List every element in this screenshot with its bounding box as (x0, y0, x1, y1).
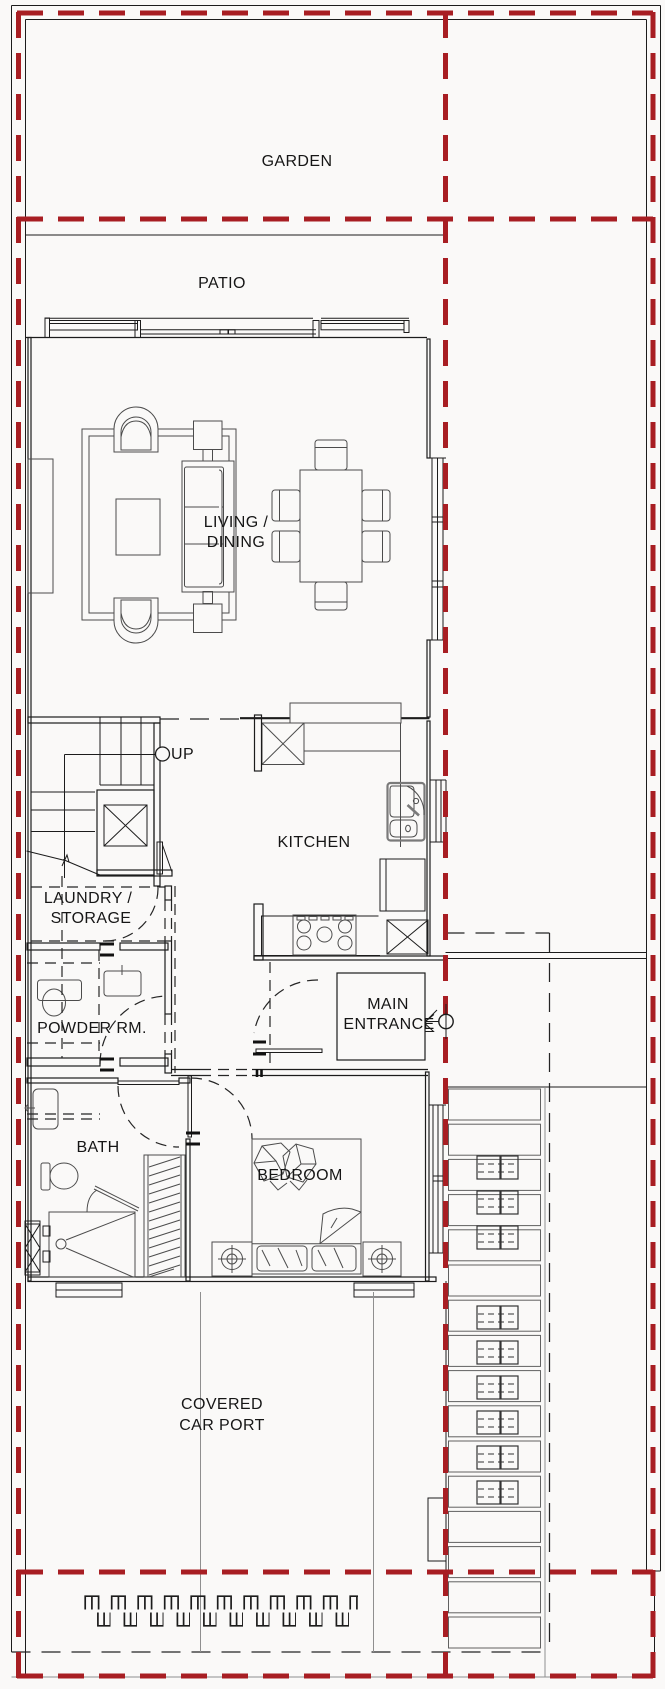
svg-text:STORAGE: STORAGE (51, 910, 132, 927)
svg-text:LAUNDRY /: LAUNDRY / (44, 890, 133, 907)
svg-text:UP: UP (171, 746, 194, 763)
svg-text:KITCHEN: KITCHEN (277, 834, 350, 851)
svg-text:ENTRANCE: ENTRANCE (343, 1016, 434, 1033)
svg-text:LIVING /: LIVING / (204, 514, 269, 531)
svg-text:BATH: BATH (76, 1139, 119, 1156)
svg-text:COVERED: COVERED (181, 1396, 263, 1413)
svg-text:CAR PORT: CAR PORT (179, 1417, 265, 1434)
svg-text:BEDROOM: BEDROOM (257, 1167, 342, 1184)
svg-text:POWDER RM.: POWDER RM. (37, 1020, 147, 1037)
svg-text:GARDEN: GARDEN (262, 153, 333, 170)
svg-text:PATIO: PATIO (198, 275, 246, 292)
svg-text:DINING: DINING (207, 534, 265, 551)
svg-text:MAIN: MAIN (367, 996, 409, 1013)
